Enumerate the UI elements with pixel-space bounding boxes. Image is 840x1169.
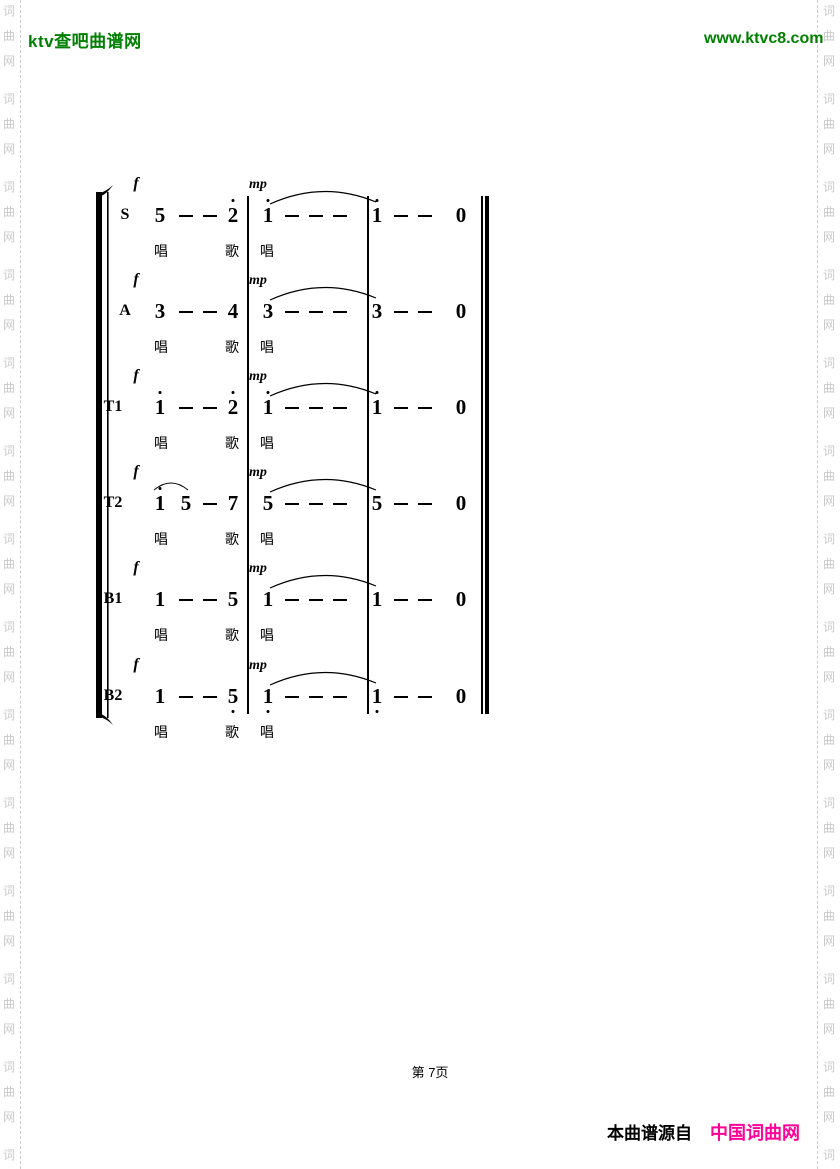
note-dash [203,311,217,313]
note-dash [203,503,217,505]
watermark-char: 曲 [823,203,835,220]
watermark-char: 词 [3,354,15,371]
watermark-char: 网 [3,492,15,509]
watermark-char: 词 [823,266,835,283]
note-dash [418,503,432,505]
note-dash [285,696,299,698]
slur [264,566,382,594]
watermark-char: 曲 [3,115,15,132]
lyric: 唱 [154,340,168,354]
lyric: 唱 [260,244,274,258]
slur [264,182,382,210]
octave-dot-high [232,199,235,202]
dynamic-f: f [133,464,138,480]
lyric: 歌 [225,532,239,546]
note-dash [418,215,432,217]
watermark-char: 网 [823,580,835,597]
watermark-char: 网 [3,580,15,597]
watermark-char: 曲 [823,1083,835,1100]
watermark-char: 网 [3,668,15,685]
watermark-char: 词 [3,882,15,899]
note: 0 [456,493,467,514]
watermark-char: 词 [823,530,835,547]
watermark-char: 曲 [3,467,15,484]
watermark-char: 网 [823,1108,835,1125]
note-dash [418,599,432,601]
watermark-char: 曲 [3,819,15,836]
watermark-char: 网 [3,844,15,861]
part-label: B2 [104,688,123,704]
watermark-char: 网 [823,668,835,685]
watermark-char: 词 [3,970,15,987]
note-dash [394,696,408,698]
note-dash [333,407,347,409]
watermark-char: 曲 [3,555,15,572]
note-dash [418,696,432,698]
note: 2 [228,205,239,226]
slur-small [152,477,190,493]
note-dash [285,407,299,409]
watermark-char: 词 [823,354,835,371]
note: 4 [228,301,239,322]
barline [367,196,369,714]
watermark-char: 曲 [823,27,835,44]
watermark-char: 词 [3,794,15,811]
source-attribution: 本曲谱源自中国词曲网 [607,1119,800,1145]
note-dash [285,215,299,217]
note-dash [394,215,408,217]
note: 1 [155,686,166,707]
lyric: 唱 [260,628,274,642]
lyric: 唱 [260,532,274,546]
score-page: 词曲网词曲网词曲网词曲网词曲网词曲网词曲网词曲网词曲网词曲网词曲网词曲网词曲网词… [0,0,840,1169]
note-dash [309,503,323,505]
note: 7 [228,493,239,514]
watermark-char: 词 [3,90,15,107]
part-label: S [121,207,130,223]
note: 1 [155,589,166,610]
site-name: ktv查吧曲谱网 [28,27,142,52]
watermark-char: 词 [823,1058,835,1075]
watermark-char: 词 [3,442,15,459]
watermark-char: 网 [3,140,15,157]
note-dash [333,503,347,505]
watermark-char: 曲 [3,291,15,308]
octave-dot-high [232,391,235,394]
watermark-char: 词 [3,706,15,723]
note-dash [309,311,323,313]
dynamic-f: f [133,657,138,673]
watermark-char: 曲 [823,555,835,572]
note-dash [394,599,408,601]
watermark-char: 网 [823,140,835,157]
lyric: 歌 [225,628,239,642]
slur [264,374,382,402]
note: 3 [155,301,166,322]
dynamic-f: f [133,368,138,384]
watermark-char: 词 [823,882,835,899]
watermark-char: 曲 [823,467,835,484]
part-label: B1 [104,591,123,607]
watermark-char: 词 [823,794,835,811]
note: 2 [228,397,239,418]
note-dash [179,311,193,313]
slur [264,663,382,691]
note-dash [333,599,347,601]
watermark-char: 词 [3,530,15,547]
watermark-char: 词 [823,706,835,723]
watermark-char: 曲 [3,907,15,924]
lyric: 歌 [225,340,239,354]
watermark-char: 词 [823,970,835,987]
site-url: www.ktvc8.com [704,30,823,48]
watermark-char: 网 [823,1020,835,1037]
part-label: T2 [104,495,123,511]
note-dash [203,407,217,409]
note-dash [309,407,323,409]
watermark-char: 曲 [3,1083,15,1100]
watermark-char: 曲 [3,379,15,396]
lyric: 唱 [154,725,168,739]
watermark-char: 网 [3,228,15,245]
part-label: A [119,303,131,319]
watermark-char: 词 [823,178,835,195]
note-dash [394,503,408,505]
lyric: 唱 [260,340,274,354]
watermark-char: 词 [3,618,15,635]
watermark-char: 网 [3,52,15,69]
octave-dot-low [267,710,270,713]
lyric: 唱 [260,436,274,450]
note-dash [285,311,299,313]
watermark-char: 曲 [823,995,835,1012]
watermark-char: 曲 [3,995,15,1012]
watermark-char: 曲 [823,291,835,308]
watermark-char: 网 [823,492,835,509]
watermark-char: 词 [3,266,15,283]
watermark-char: 网 [3,1108,15,1125]
note-dash [179,696,193,698]
lyric: 唱 [154,532,168,546]
note: 5 [181,493,192,514]
watermark-char: 曲 [823,731,835,748]
lyric: 歌 [225,436,239,450]
note: 1 [155,397,166,418]
note: 5 [228,589,239,610]
watermark-char: 网 [3,932,15,949]
note-dash [333,311,347,313]
watermark-char: 曲 [3,203,15,220]
watermark-char: 网 [823,844,835,861]
note-dash [179,407,193,409]
watermark-char: 网 [3,756,15,773]
lyric: 唱 [154,244,168,258]
watermark-char: 词 [3,178,15,195]
left-dashed-border [20,0,21,1169]
system-bracket [92,186,114,724]
watermark-char: 曲 [823,643,835,660]
watermark-char: 网 [823,52,835,69]
watermark-char: 网 [823,316,835,333]
note: 0 [456,686,467,707]
lyric: 唱 [260,725,274,739]
source-site-name: 中国词曲网 [710,1123,800,1143]
dynamic-f: f [133,272,138,288]
watermark-char: 词 [823,442,835,459]
watermark-char: 曲 [823,115,835,132]
note-dash [394,311,408,313]
note: 0 [456,589,467,610]
watermark-char: 曲 [3,643,15,660]
note-dash [333,696,347,698]
watermark-char: 曲 [823,907,835,924]
note-dash [309,599,323,601]
note: 0 [456,301,467,322]
part-label: T1 [104,399,123,415]
lyric: 唱 [154,436,168,450]
octave-dot-low [232,710,235,713]
lyric: 歌 [225,244,239,258]
watermark-char: 网 [823,228,835,245]
watermark-char: 网 [823,756,835,773]
watermark-char: 词 [3,1146,15,1163]
watermark-char: 曲 [823,819,835,836]
note-dash [179,215,193,217]
slur [264,278,382,306]
note: 0 [456,205,467,226]
page-number: 第 7页 [412,1062,449,1081]
note-dash [394,407,408,409]
watermark-char: 曲 [823,379,835,396]
note: 5 [155,205,166,226]
octave-dot-high [159,391,162,394]
dynamic-f: f [133,560,138,576]
dynamic-f: f [133,176,138,192]
watermark-char: 曲 [3,731,15,748]
lyric: 唱 [154,628,168,642]
final-barline-thick [485,196,489,714]
watermark-char: 网 [3,404,15,421]
watermark-char: 词 [823,1146,835,1163]
note-dash [285,599,299,601]
watermark-char: 词 [823,618,835,635]
note-dash [203,599,217,601]
note-dash [203,215,217,217]
note: 5 [228,686,239,707]
watermark-char: 曲 [3,27,15,44]
note-dash [309,696,323,698]
source-prefix: 本曲谱源自 [607,1124,692,1143]
note-dash [203,696,217,698]
watermark-char: 网 [3,1020,15,1037]
lyric: 歌 [225,725,239,739]
note-dash [309,215,323,217]
watermark-char: 网 [3,316,15,333]
watermark-char: 词 [3,2,15,19]
watermark-char: 词 [823,2,835,19]
watermark-char: 词 [3,1058,15,1075]
note: 1 [155,493,166,514]
watermark-char: 网 [823,404,835,421]
note-dash [418,311,432,313]
final-barline-thin [481,196,483,714]
watermark-char: 词 [823,90,835,107]
note-dash [333,215,347,217]
note-dash [418,407,432,409]
watermark-char: 网 [823,932,835,949]
note-dash [179,599,193,601]
note-dash [285,503,299,505]
slur [264,470,382,498]
right-dashed-border [817,0,818,1169]
note: 0 [456,397,467,418]
octave-dot-low [376,710,379,713]
